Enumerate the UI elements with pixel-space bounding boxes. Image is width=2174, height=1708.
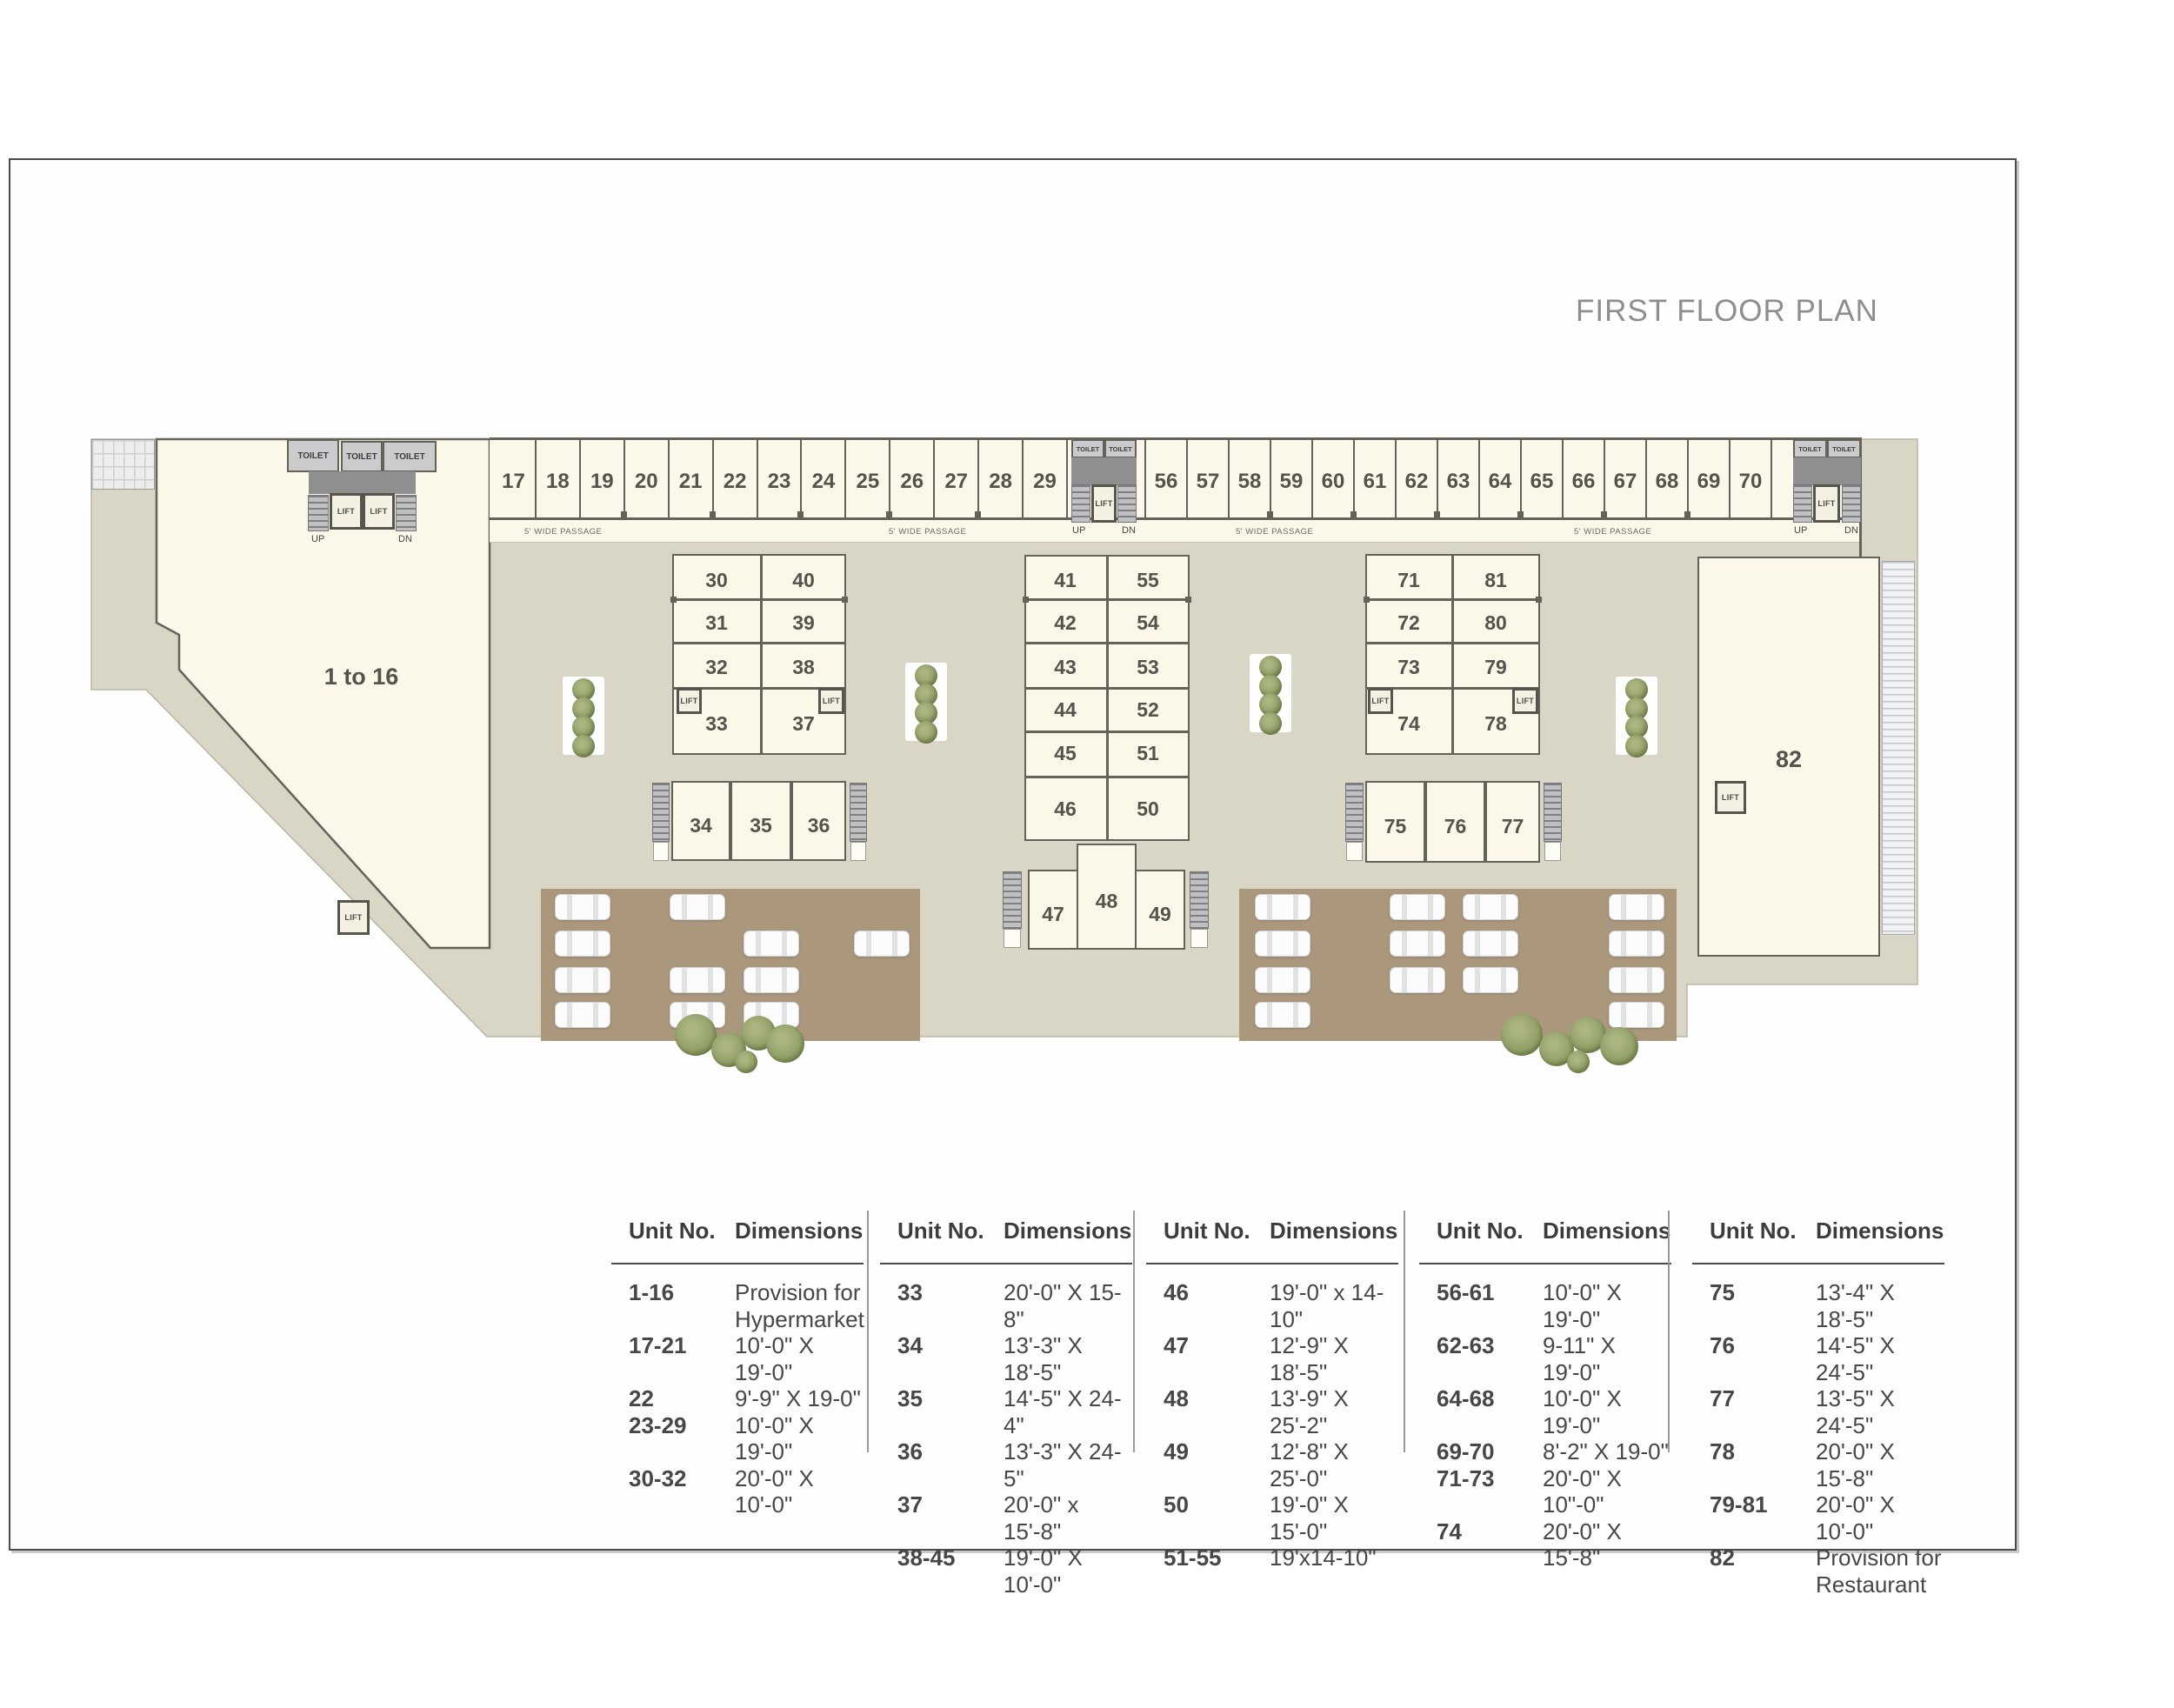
unit-room-label: 19 bbox=[580, 468, 624, 496]
lift: LIFT bbox=[818, 688, 844, 714]
table-header: Unit No.Dimensions bbox=[1146, 1218, 1398, 1264]
wall-post bbox=[1536, 597, 1542, 603]
wall bbox=[1066, 439, 1068, 517]
unit-room-label: 50 bbox=[1118, 796, 1177, 822]
unit-room-label: 37 bbox=[774, 711, 833, 737]
tree-icon bbox=[572, 735, 595, 757]
passage-label: 5' WIDE PASSAGE bbox=[1574, 527, 1670, 539]
unit-no-cell: 22 bbox=[629, 1385, 735, 1412]
toilet-room: TOILET bbox=[341, 441, 383, 472]
wall-post bbox=[1601, 511, 1607, 517]
dimension-cell: 13'-3" X 18'-5" bbox=[1004, 1332, 1132, 1385]
car-icon bbox=[1609, 967, 1664, 993]
dimension-cell: 20'-0" X 15-8" bbox=[1004, 1279, 1132, 1332]
unit-no-cell: 38-45 bbox=[897, 1545, 1004, 1571]
stairs-down-label: DN bbox=[1122, 525, 1148, 537]
table-row: 7614'-5" X 24'-5" bbox=[1710, 1332, 1944, 1385]
table-divider bbox=[1668, 1211, 1670, 1452]
toilet-room: TOILET bbox=[1793, 439, 1827, 458]
dimension-cell: 19'x14-10" bbox=[1270, 1545, 1398, 1571]
stairs bbox=[1345, 783, 1364, 842]
dimension-cell: 10'-0" X 19'-0" bbox=[735, 1332, 864, 1385]
unit-no-cell: 34 bbox=[897, 1332, 1004, 1359]
unit-room-label: 60 bbox=[1312, 468, 1354, 496]
dimension-cell: 19'-0" X 15'-0" bbox=[1270, 1491, 1398, 1545]
unit-room-label: 55 bbox=[1118, 567, 1177, 593]
table-row: 71-7320'-0" X 10"-0" bbox=[1437, 1465, 1671, 1518]
lift-lobby bbox=[1071, 457, 1137, 485]
car-icon bbox=[1463, 894, 1518, 920]
passage-label: 5' WIDE PASSAGE bbox=[524, 527, 620, 539]
table-divider bbox=[1404, 1211, 1405, 1452]
car-icon bbox=[670, 967, 725, 993]
unit-no-cell: 75 bbox=[1710, 1279, 1816, 1306]
table-row: 62-639-11" X 19'-0" bbox=[1437, 1332, 1671, 1385]
unit-no-cell: 37 bbox=[897, 1491, 1004, 1518]
wall-post bbox=[886, 511, 892, 517]
table-row: 7713'-5" X 24'-5" bbox=[1710, 1385, 1944, 1438]
table-divider bbox=[867, 1211, 869, 1452]
unit-no-cell: 36 bbox=[897, 1438, 1004, 1465]
table-row: 4912'-8" X 25'-0" bbox=[1164, 1438, 1398, 1491]
dimension-cell: 9-11" X 19'-0" bbox=[1543, 1332, 1671, 1385]
car-icon bbox=[1390, 967, 1445, 993]
plan-sheet: FIRST FLOOR PLAN 17181920212223242526272… bbox=[0, 0, 2174, 1708]
car-icon bbox=[670, 894, 725, 920]
dimensions-header: Dimensions bbox=[1543, 1218, 1671, 1244]
unit-room-label: 72 bbox=[1379, 610, 1438, 636]
table-row: 79-8120'-0" X 10'-0" bbox=[1710, 1491, 1944, 1545]
unit-room-label: 68 bbox=[1646, 468, 1688, 496]
dimension-cell: 9'-9" X 19-0" bbox=[735, 1385, 864, 1412]
stair-landing bbox=[1004, 929, 1021, 948]
unit-no-cell: 33 bbox=[897, 1279, 1004, 1306]
lift: LIFT bbox=[1091, 484, 1117, 523]
stairs bbox=[1190, 871, 1209, 929]
dimension-cell: 8'-2" X 19-0" bbox=[1543, 1438, 1671, 1465]
unit-room-label: 67 bbox=[1604, 468, 1646, 496]
table-row: 229'-9" X 19-0" bbox=[629, 1385, 864, 1412]
table-row: 3613'-3" X 24-5" bbox=[897, 1438, 1132, 1491]
wall-post bbox=[1023, 597, 1029, 603]
unit-no-cell: 50 bbox=[1164, 1491, 1270, 1518]
lift: LIFT bbox=[337, 900, 370, 935]
table-rows: 4619'-0" x 14-10"4712'-9" X 18'-5"4813'-… bbox=[1146, 1264, 1398, 1571]
lift: LIFT bbox=[363, 493, 395, 530]
table-header: Unit No.Dimensions bbox=[611, 1218, 864, 1264]
table-row: 7820'-0" X 15'-8" bbox=[1710, 1438, 1944, 1491]
dimension-cell: 12'-9" X 18'-5" bbox=[1270, 1332, 1398, 1385]
table-rows: 7513'-4" X 18'-5"7614'-5" X 24'-5"7713'-… bbox=[1692, 1264, 1944, 1598]
stair-landing bbox=[1346, 842, 1363, 861]
tree-icon bbox=[915, 721, 937, 744]
tree-icon bbox=[1567, 1051, 1590, 1073]
wall-post bbox=[1350, 511, 1357, 517]
unit-room-label: 65 bbox=[1521, 468, 1563, 496]
stairs bbox=[850, 783, 867, 842]
dimension-cell: 20'-0" X 10'-0" bbox=[1816, 1491, 1944, 1545]
unit-room-label: 36 bbox=[791, 812, 846, 838]
unit-no-cell: 62-63 bbox=[1437, 1332, 1543, 1359]
car-icon bbox=[1255, 931, 1310, 957]
stair-landing bbox=[1544, 842, 1561, 861]
dimension-cell: 12'-8" X 25'-0" bbox=[1270, 1438, 1398, 1491]
unit-room-label: 80 bbox=[1466, 610, 1525, 636]
unit-room-label: 17 bbox=[491, 468, 536, 496]
car-icon bbox=[744, 931, 799, 957]
unit-room-label: 76 bbox=[1425, 813, 1485, 839]
table-row: 3320'-0" X 15-8" bbox=[897, 1279, 1132, 1332]
unit-room-label: 59 bbox=[1270, 468, 1312, 496]
unit-room-label: 24 bbox=[801, 468, 845, 496]
unit-room-label: 23 bbox=[757, 468, 802, 496]
dimension-cell: 19'-0" x 14-10" bbox=[1270, 1279, 1398, 1332]
wall-post bbox=[1364, 597, 1370, 603]
stairs-up-label: UP bbox=[311, 534, 337, 546]
tree-icon bbox=[1501, 1014, 1543, 1056]
car-icon bbox=[1463, 967, 1518, 993]
dimension-cell: 10'-0" X 19'-0" bbox=[735, 1412, 864, 1465]
unit-no-cell: 64-68 bbox=[1437, 1385, 1543, 1412]
dimension-cell: 13'-4" X 18'-5" bbox=[1816, 1279, 1944, 1332]
dimension-cell: 20'-0" X 10'-0" bbox=[735, 1465, 864, 1518]
unit-room-label: 49 bbox=[1135, 901, 1185, 927]
unit-room-label: 77 bbox=[1485, 813, 1540, 839]
unit-no-cell: 77 bbox=[1710, 1385, 1816, 1412]
wall-post bbox=[1185, 597, 1191, 603]
wall bbox=[490, 517, 1862, 520]
unit-no-cell: 82 bbox=[1710, 1545, 1816, 1571]
unit-room-label: 22 bbox=[713, 468, 757, 496]
toilet-room: TOILET bbox=[287, 439, 339, 472]
unit-no-header: Unit No. bbox=[897, 1218, 1004, 1244]
wall bbox=[1026, 687, 1188, 690]
car-icon bbox=[1390, 894, 1445, 920]
table-row: 3720'-0" x 15'-8" bbox=[897, 1491, 1132, 1545]
wall bbox=[1451, 556, 1454, 753]
tree-icon bbox=[1259, 712, 1282, 735]
unit-room-label: 71 bbox=[1379, 567, 1438, 593]
dimensions-header: Dimensions bbox=[1270, 1218, 1398, 1244]
unit-no-cell: 46 bbox=[1164, 1279, 1270, 1306]
unit-room-label: 53 bbox=[1118, 654, 1177, 680]
passage-label: 5' WIDE PASSAGE bbox=[889, 527, 984, 539]
table-rows: 3320'-0" X 15-8"3413'-3" X 18'-5"3514'-5… bbox=[880, 1264, 1132, 1598]
unit-room-label: 41 bbox=[1036, 567, 1095, 593]
dimension-table-group: Unit No.Dimensions4619'-0" x 14-10"4712'… bbox=[1146, 1218, 1398, 1478]
wall bbox=[1026, 642, 1188, 644]
dimension-cell: 14'-5" X 24'-5" bbox=[1816, 1332, 1944, 1385]
dimensions-header: Dimensions bbox=[735, 1218, 864, 1244]
unit-room-label: 21 bbox=[669, 468, 713, 496]
dimension-table-group: Unit No.Dimensions3320'-0" X 15-8"3413'-… bbox=[880, 1218, 1132, 1478]
unit-no-cell: 1-16 bbox=[629, 1279, 735, 1306]
table-row: 51-5519'x14-10" bbox=[1164, 1545, 1398, 1571]
unit-no-cell: 23-29 bbox=[629, 1412, 735, 1439]
unit-room-label: 62 bbox=[1396, 468, 1437, 496]
wall bbox=[1771, 439, 1772, 517]
table-rows: 56-6110'-0" X 19'-0"62-639-11" X 19'-0"6… bbox=[1419, 1264, 1671, 1571]
unit-room-label: 78 bbox=[1466, 711, 1525, 737]
dimensions-header: Dimensions bbox=[1004, 1218, 1132, 1244]
car-icon bbox=[555, 1002, 610, 1028]
table-row: 38-4519'-0" X 10'-0" bbox=[897, 1545, 1132, 1598]
unit-no-cell: 78 bbox=[1710, 1438, 1816, 1465]
table-row: 56-6110'-0" X 19'-0" bbox=[1437, 1279, 1671, 1332]
tree-icon bbox=[1600, 1027, 1638, 1065]
unit-no-cell: 71-73 bbox=[1437, 1465, 1543, 1492]
lift-lobby bbox=[1793, 457, 1861, 485]
car-icon bbox=[1255, 967, 1310, 993]
unit-room-label: 42 bbox=[1036, 610, 1095, 636]
unit-room-label: 79 bbox=[1466, 654, 1525, 680]
dimensions-header: Dimensions bbox=[1816, 1218, 1944, 1244]
stairs bbox=[308, 495, 329, 531]
dimension-cell: 14'-5" X 24-4" bbox=[1004, 1385, 1132, 1438]
stairs bbox=[1117, 484, 1137, 523]
unit-room-label: 66 bbox=[1563, 468, 1604, 496]
stairs-down-label: DN bbox=[1844, 525, 1871, 537]
unit-room-label: 81 bbox=[1466, 567, 1525, 593]
unit-no-header: Unit No. bbox=[1710, 1218, 1816, 1244]
unit-no-header: Unit No. bbox=[629, 1218, 735, 1244]
unit-no-cell: 48 bbox=[1164, 1385, 1270, 1412]
unit-room-label: 44 bbox=[1036, 697, 1095, 723]
stairs bbox=[652, 783, 670, 842]
unit-room-label: 35 bbox=[730, 812, 791, 838]
dimension-table-group: Unit No.Dimensions1-16Provision for Hype… bbox=[611, 1218, 864, 1478]
table-header: Unit No.Dimensions bbox=[1692, 1218, 1944, 1264]
stair-landing bbox=[653, 842, 669, 861]
car-icon bbox=[1255, 1002, 1310, 1028]
wall-post bbox=[975, 511, 981, 517]
wall-post bbox=[1684, 511, 1691, 517]
unit-room-label: 18 bbox=[536, 468, 580, 496]
unit-room-label: 25 bbox=[845, 468, 890, 496]
car-icon bbox=[744, 967, 799, 993]
tree-icon bbox=[1625, 735, 1648, 757]
unit-no-header: Unit No. bbox=[1437, 1218, 1543, 1244]
wall bbox=[1367, 598, 1538, 601]
unit-room-label: 27 bbox=[934, 468, 978, 496]
toilet-room: TOILET bbox=[383, 441, 437, 472]
dimension-cell: 20'-0" X 15'-8" bbox=[1543, 1518, 1671, 1571]
unit-room-label: 26 bbox=[890, 468, 934, 496]
table-header: Unit No.Dimensions bbox=[1419, 1218, 1671, 1264]
stair-landing bbox=[850, 842, 866, 861]
tree-icon bbox=[735, 1051, 757, 1073]
unit-room-label: 64 bbox=[1479, 468, 1521, 496]
dimension-cell: Provision for Restaurant bbox=[1816, 1545, 1944, 1598]
wall bbox=[1026, 598, 1188, 601]
stairs bbox=[396, 495, 417, 531]
dimension-cell: 13'-3" X 24-5" bbox=[1004, 1438, 1132, 1491]
table-row: 30-3220'-0" X 10'-0" bbox=[629, 1465, 864, 1518]
wall bbox=[1026, 731, 1188, 733]
lift: LIFT bbox=[1512, 688, 1538, 714]
unit-room-label: 45 bbox=[1036, 740, 1095, 766]
unit-room-label: 46 bbox=[1036, 796, 1095, 822]
wall-post bbox=[670, 597, 677, 603]
unit-no-cell: 47 bbox=[1164, 1332, 1270, 1359]
wall-post bbox=[710, 511, 716, 517]
dimension-cell: 10'-0" X 19'-0" bbox=[1543, 1279, 1671, 1332]
car-icon bbox=[1463, 931, 1518, 957]
stairs bbox=[1003, 871, 1022, 929]
unit-room-label: 69 bbox=[1688, 468, 1730, 496]
car-icon bbox=[555, 967, 610, 993]
unit-room-label: 58 bbox=[1229, 468, 1270, 496]
toilet-room: TOILET bbox=[1827, 439, 1861, 458]
dimension-cell: 20'-0" x 15'-8" bbox=[1004, 1491, 1132, 1545]
unit-room-label: 75 bbox=[1365, 813, 1425, 839]
lift: LIFT bbox=[330, 493, 363, 530]
passage-label: 5' WIDE PASSAGE bbox=[1236, 527, 1331, 539]
dimension-table-group: Unit No.Dimensions56-6110'-0" X 19'-0"62… bbox=[1419, 1218, 1671, 1478]
unit-no-cell: 74 bbox=[1437, 1518, 1543, 1545]
unit-no-cell: 56-61 bbox=[1437, 1279, 1543, 1306]
unit-room-label: 31 bbox=[687, 610, 746, 636]
table-row: 7513'-4" X 18'-5" bbox=[1710, 1279, 1944, 1332]
table-row: 3413'-3" X 18'-5" bbox=[897, 1332, 1132, 1385]
car-icon bbox=[854, 931, 910, 957]
unit-room-label: 74 bbox=[1379, 711, 1438, 737]
unit-room-label: 30 bbox=[687, 567, 746, 593]
stairs-up-label: UP bbox=[1794, 525, 1820, 537]
dimension-cell: 10'-0" X 19'-0" bbox=[1543, 1385, 1671, 1438]
unit-room-label: 20 bbox=[624, 468, 669, 496]
table-row: 7420'-0" X 15'-8" bbox=[1437, 1518, 1671, 1571]
unit-room-label: 54 bbox=[1118, 610, 1177, 636]
unit-no-cell: 51-55 bbox=[1164, 1545, 1270, 1571]
dimension-table-group: Unit No.Dimensions7513'-4" X 18'-5"7614'… bbox=[1692, 1218, 1944, 1478]
wall-post bbox=[842, 597, 848, 603]
stair-landing bbox=[1190, 929, 1208, 948]
restaurant-label: 82 bbox=[1754, 745, 1824, 773]
lift: LIFT bbox=[1813, 484, 1840, 523]
hypermarket-label: 1 to 16 bbox=[320, 663, 403, 691]
car-icon bbox=[1609, 931, 1664, 957]
lift: LIFT bbox=[1368, 688, 1393, 714]
entry-ramp bbox=[91, 439, 155, 490]
table-row: 5019'-0" X 15'-0" bbox=[1164, 1491, 1398, 1545]
wall-post bbox=[1267, 511, 1273, 517]
toilet-room: TOILET bbox=[1071, 439, 1104, 458]
unit-room-label: 63 bbox=[1437, 468, 1479, 496]
car-icon bbox=[555, 894, 610, 920]
unit-no-cell: 69-70 bbox=[1437, 1438, 1543, 1465]
table-row: 69-708'-2" X 19-0" bbox=[1437, 1438, 1671, 1465]
table-row: 4712'-9" X 18'-5" bbox=[1164, 1332, 1398, 1385]
wall bbox=[674, 642, 844, 644]
car-icon bbox=[1609, 1002, 1664, 1028]
unit-no-cell: 35 bbox=[897, 1385, 1004, 1412]
wall bbox=[1026, 776, 1188, 778]
stairs-down-label: DN bbox=[398, 534, 424, 546]
table-row: 64-6810'-0" X 19'-0" bbox=[1437, 1385, 1671, 1438]
wall-post bbox=[1517, 511, 1524, 517]
table-row: 1-16Provision for Hypermarket bbox=[629, 1279, 864, 1332]
dimension-cell: Provision for Hypermarket bbox=[735, 1279, 864, 1332]
unit-room-label: 28 bbox=[978, 468, 1023, 496]
dimension-cell: 19'-0" X 10'-0" bbox=[1004, 1545, 1132, 1598]
unit-room-label: 33 bbox=[687, 711, 746, 737]
lift-lobby bbox=[309, 471, 416, 494]
unit-room-label: 34 bbox=[671, 812, 730, 838]
table-row: 4619'-0" x 14-10" bbox=[1164, 1279, 1398, 1332]
stairs bbox=[1842, 484, 1861, 523]
unit-room-label: 39 bbox=[774, 610, 833, 636]
unit-no-cell: 76 bbox=[1710, 1332, 1816, 1359]
table-row: 3514'-5" X 24-4" bbox=[897, 1385, 1132, 1438]
dimension-cell: 20'-0" X 15'-8" bbox=[1816, 1438, 1944, 1491]
car-icon bbox=[1255, 894, 1310, 920]
toilet-room: TOILET bbox=[1104, 439, 1137, 458]
unit-room-label: 73 bbox=[1379, 654, 1438, 680]
dimension-cell: 13'-5" X 24'-5" bbox=[1816, 1385, 1944, 1438]
unit-room-label: 38 bbox=[774, 654, 833, 680]
unit-room-label: 57 bbox=[1187, 468, 1229, 496]
unit-no-cell: 17-21 bbox=[629, 1332, 735, 1359]
stairs-up-label: UP bbox=[1072, 525, 1098, 537]
tree-icon bbox=[766, 1024, 804, 1063]
unit-room-label: 43 bbox=[1036, 654, 1095, 680]
table-row: 17-2110'-0" X 19'-0" bbox=[629, 1332, 864, 1385]
unit-room-label: 48 bbox=[1077, 888, 1137, 914]
dimension-cell: 20'-0" X 10"-0" bbox=[1543, 1465, 1671, 1518]
lift: LIFT bbox=[1715, 781, 1746, 814]
unit-no-cell: 79-81 bbox=[1710, 1491, 1816, 1518]
car-icon bbox=[555, 931, 610, 957]
table-rows: 1-16Provision for Hypermarket17-2110'-0"… bbox=[611, 1264, 864, 1518]
table-row: 4813'-9" X 25'-2" bbox=[1164, 1385, 1398, 1438]
table-header: Unit No.Dimensions bbox=[880, 1218, 1132, 1264]
wall bbox=[1367, 642, 1538, 644]
wall-post bbox=[621, 511, 627, 517]
table-divider bbox=[1133, 1211, 1135, 1452]
unit-room-label: 51 bbox=[1118, 740, 1177, 766]
unit-no-header: Unit No. bbox=[1164, 1218, 1270, 1244]
unit-no-cell: 30-32 bbox=[629, 1465, 735, 1492]
unit-no-cell: 49 bbox=[1164, 1438, 1270, 1465]
unit-room-label: 70 bbox=[1730, 468, 1771, 496]
unit-room-label: 32 bbox=[687, 654, 746, 680]
unit-room-label: 40 bbox=[774, 567, 833, 593]
wall bbox=[674, 598, 844, 601]
table-row: 82Provision for Restaurant bbox=[1710, 1545, 1944, 1598]
unit-room-label: 56 bbox=[1145, 468, 1187, 496]
unit-room-label: 61 bbox=[1354, 468, 1396, 496]
unit-room-label: 47 bbox=[1028, 901, 1078, 927]
tree-icon bbox=[675, 1014, 717, 1056]
car-icon bbox=[1390, 931, 1445, 957]
side-stairs bbox=[1882, 561, 1915, 935]
table-row: 23-2910'-0" X 19'-0" bbox=[629, 1412, 864, 1465]
unit-room-label: 29 bbox=[1023, 468, 1067, 496]
unit-room-label: 52 bbox=[1118, 697, 1177, 723]
wall-post bbox=[1434, 511, 1440, 517]
stairs bbox=[1544, 783, 1562, 842]
stairs bbox=[1793, 484, 1812, 523]
stairs bbox=[1071, 484, 1090, 523]
lift: LIFT bbox=[677, 688, 702, 714]
dimension-cell: 13'-9" X 25'-2" bbox=[1270, 1385, 1398, 1438]
car-icon bbox=[1609, 894, 1664, 920]
wall-post bbox=[797, 511, 804, 517]
wall bbox=[760, 556, 763, 753]
